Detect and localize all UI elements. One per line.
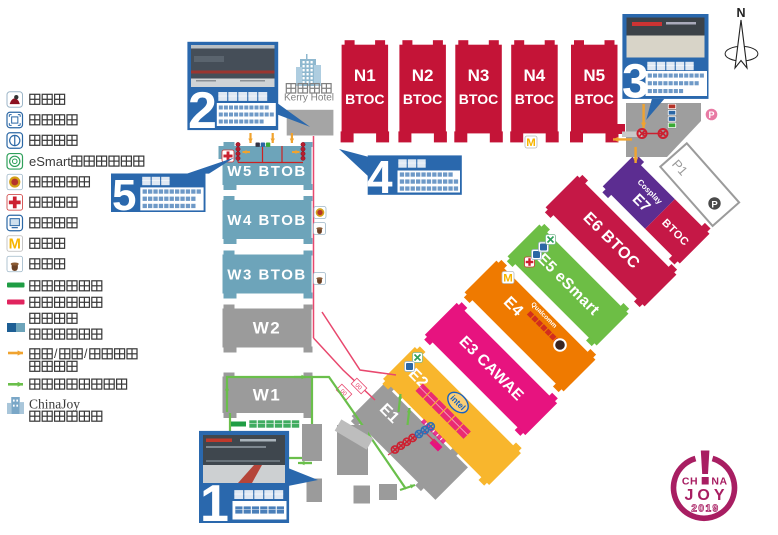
svg-text:P: P — [708, 110, 714, 120]
svg-text:M: M — [9, 236, 21, 252]
svg-text:5: 5 — [112, 171, 136, 220]
svg-text:BTOC: BTOC — [515, 91, 554, 107]
svg-text:N4: N4 — [524, 66, 546, 85]
svg-text:N3: N3 — [468, 66, 490, 85]
svg-text:N2: N2 — [412, 66, 434, 85]
svg-text:BTOC: BTOC — [345, 91, 384, 107]
svg-text:W3 BTOB: W3 BTOB — [227, 267, 306, 284]
svg-text:eSmart: eSmart — [29, 154, 71, 169]
svg-text:P: P — [711, 199, 718, 210]
svg-text:BTOC: BTOC — [574, 91, 613, 107]
svg-text:M: M — [503, 272, 513, 284]
svg-text:NA: NA — [711, 476, 727, 488]
svg-text:N: N — [736, 6, 745, 20]
svg-text:W5 BTOB: W5 BTOB — [227, 163, 306, 180]
svg-text:Kerry Hotel: Kerry Hotel — [284, 93, 334, 104]
svg-text:N1: N1 — [354, 66, 376, 85]
svg-text:2: 2 — [188, 82, 217, 140]
svg-text:/: / — [84, 347, 88, 361]
svg-text:W4 BTOB: W4 BTOB — [227, 212, 306, 229]
svg-text:/: / — [54, 347, 58, 361]
svg-text:2019: 2019 — [691, 504, 719, 515]
svg-text:W1: W1 — [253, 385, 282, 404]
svg-text:ChinaJoy: ChinaJoy — [29, 397, 80, 412]
svg-text:W2: W2 — [253, 319, 282, 338]
svg-text:N5: N5 — [583, 66, 605, 85]
svg-text:1: 1 — [200, 475, 229, 530]
svg-text:4: 4 — [367, 151, 393, 203]
svg-text:JOY: JOY — [684, 487, 728, 504]
svg-text:3: 3 — [622, 56, 649, 109]
svg-text:BTOC: BTOC — [403, 91, 442, 107]
svg-text:BTOC: BTOC — [459, 91, 498, 107]
svg-text:CH: CH — [682, 476, 698, 488]
svg-text:M: M — [526, 137, 536, 149]
